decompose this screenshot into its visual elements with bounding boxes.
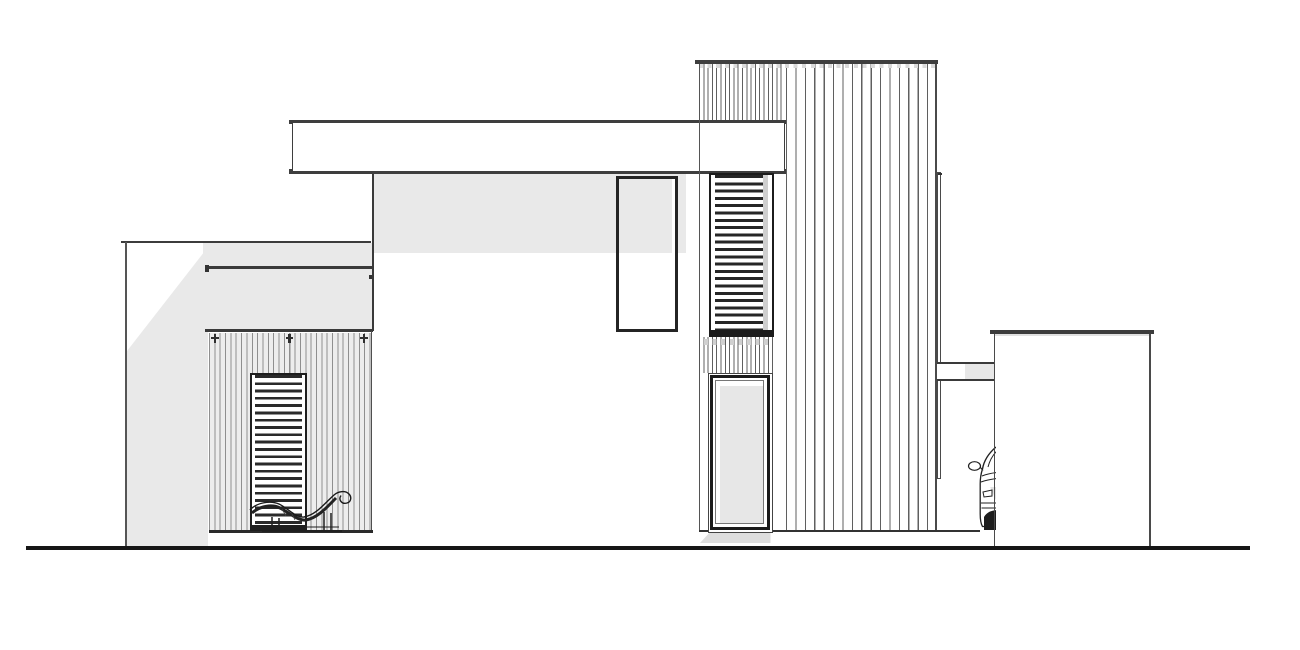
fascia-left-bracket: [205, 265, 209, 272]
porch-clip-1-bar: [211, 337, 219, 339]
chaise-lounge-art: [246, 487, 358, 533]
garage-roof-underline: [994, 334, 1151, 336]
roof-nub-top-left: [289, 120, 292, 125]
tower-louver-window: [709, 173, 774, 337]
car-behind-garage-art: [967, 446, 996, 531]
tower-upper-dense-siding: [699, 64, 785, 120]
porch-clip-1: [214, 334, 217, 343]
mid-box-window: [616, 176, 678, 333]
porch-clip-3-bar: [360, 337, 368, 339]
tall-window-glass: [715, 380, 764, 524]
porch-fascia-top-edge: [205, 266, 373, 269]
porch-clip-2-bar: [286, 337, 294, 339]
tower-main-siding: [786, 64, 936, 532]
porch-siding-right-edge: [371, 331, 372, 533]
car-behind-garage: [967, 446, 996, 531]
tall-window-glass-shade: [720, 386, 763, 524]
garage-left-corner-edge: [994, 334, 996, 546]
tower-side-fin: [937, 172, 941, 479]
elevation-canvas: [0, 0, 1300, 650]
left-wall-corner-edge: [125, 242, 127, 546]
left-wall-top-edge: [121, 241, 371, 243]
house-left-corner-edge: [372, 173, 374, 331]
tower-left-corner-edge: [699, 64, 700, 532]
left-wall-shadow: [127, 247, 209, 546]
carport-link-beam: [937, 362, 995, 381]
porch-header-shade: [203, 243, 373, 332]
fin-top-tick: [938, 173, 942, 175]
tall-window-ground-shadow: [700, 533, 771, 543]
porch-clip-3: [363, 334, 366, 343]
chaise-lounge: [246, 487, 358, 533]
main-roof-band: [292, 120, 785, 174]
tower-cap-dashes: [699, 64, 936, 68]
roof-nub-bottom-left: [289, 169, 292, 174]
tall-window-frame: [710, 375, 770, 530]
porch-clip-2: [288, 334, 291, 343]
ground-line: [26, 546, 1250, 550]
tower-clip-dashes: [704, 339, 772, 345]
garage-right-corner-edge: [1149, 334, 1151, 546]
tower-tall-window: [708, 373, 774, 534]
porch-fascia-bottom-edge: [205, 329, 373, 332]
